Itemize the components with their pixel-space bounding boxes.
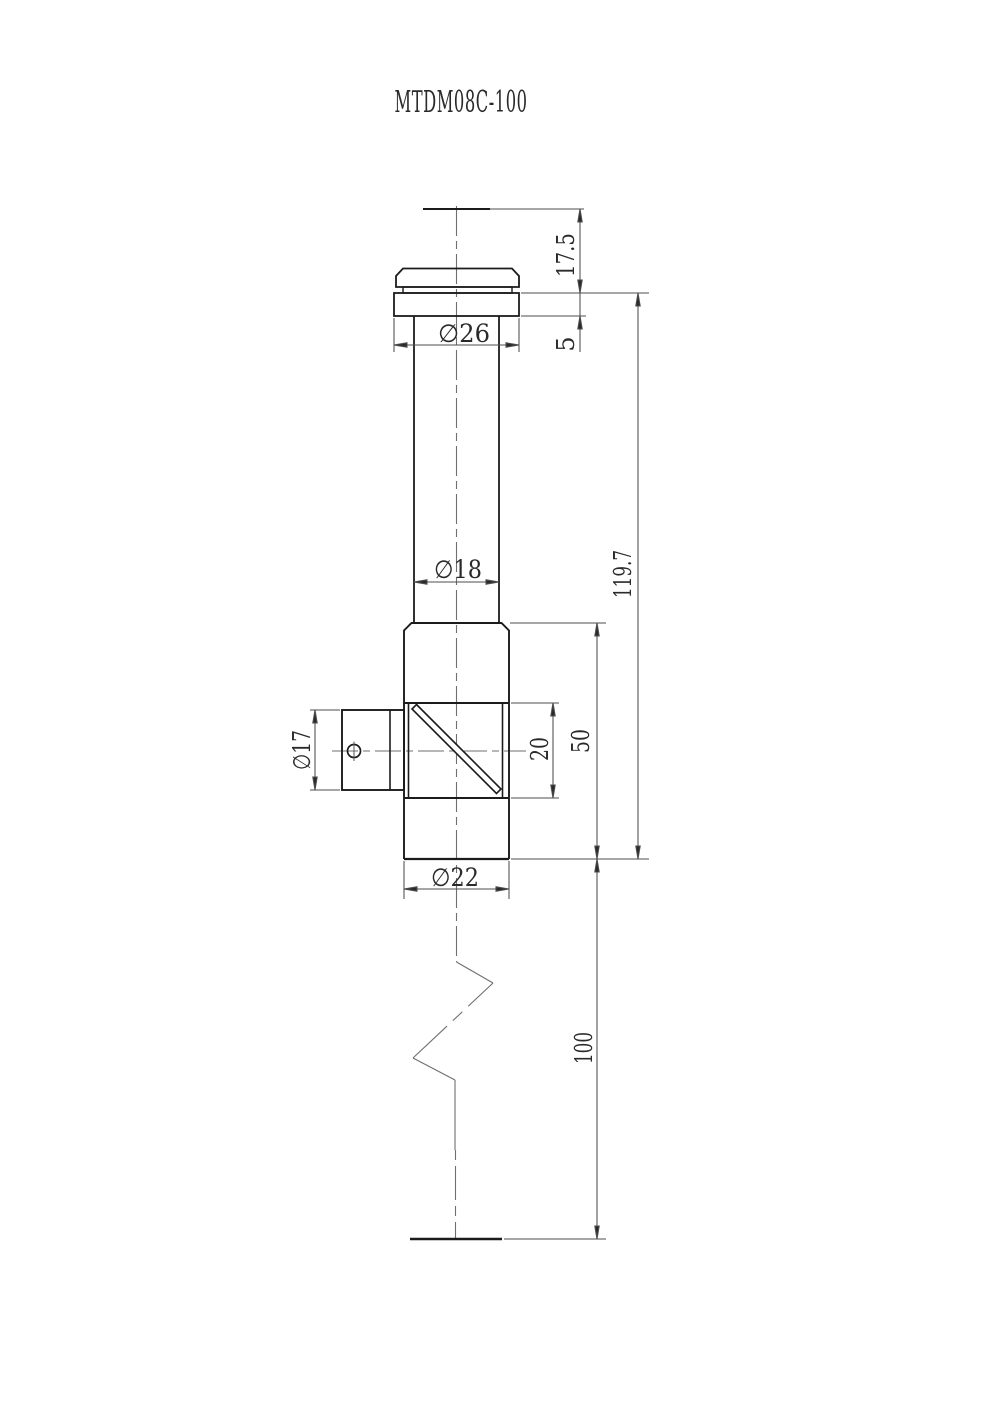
arrowhead-down	[636, 846, 640, 859]
dimension-labels: ∅26 ∅18 ∅22 17.5 5 ∅17 20 50 119.7 100	[288, 233, 637, 1064]
arrowhead-up	[578, 316, 582, 329]
side-port	[342, 710, 404, 790]
arrowhead-up	[595, 623, 599, 636]
arrowhead-left	[414, 580, 427, 584]
arrowhead-down	[313, 777, 317, 790]
part-outline	[342, 209, 519, 1239]
arrowhead-up	[578, 209, 582, 222]
tail-len-label: 100	[570, 1032, 598, 1064]
arrowhead-down	[578, 280, 582, 293]
arrowhead-right	[496, 887, 509, 891]
mirror-45deg	[412, 705, 501, 794]
dimension-lines	[310, 209, 649, 1239]
arrowhead-right	[486, 580, 499, 584]
port-dia-label: ∅17	[288, 730, 316, 770]
arrowhead-left	[394, 343, 407, 347]
body-dia-label: ∅22	[431, 863, 479, 892]
body-len-label: 50	[567, 729, 595, 753]
break-line-segment-3	[413, 1058, 455, 1080]
arrowhead-down	[595, 846, 599, 859]
arrowhead-up	[636, 293, 640, 306]
flange-dia-label: ∅26	[438, 319, 490, 348]
arrowhead-up	[595, 859, 599, 872]
break-line-segment-1	[457, 962, 494, 983]
drawing-sheet: MTDM08C-100	[0, 0, 992, 1403]
flange-thickness-label: 5	[552, 336, 580, 351]
top-cap	[396, 269, 519, 288]
arrowhead-up	[313, 710, 317, 723]
arrowhead-down	[595, 1226, 599, 1239]
arrowhead-right	[506, 343, 519, 347]
window-len-label: 20	[526, 737, 554, 761]
tube-dia-label: ∅18	[434, 555, 482, 584]
overall-len-label: 119.7	[609, 550, 637, 598]
cap-height-label: 17.5	[552, 233, 580, 277]
arrowhead-down	[551, 785, 555, 798]
drawing-title: MTDM08C-100	[395, 85, 528, 120]
technical-drawing-canvas: MTDM08C-100	[0, 0, 992, 1403]
arrowhead-up	[551, 703, 555, 716]
break-line-segment-2	[413, 983, 493, 1058]
arrowhead-left	[404, 887, 417, 891]
